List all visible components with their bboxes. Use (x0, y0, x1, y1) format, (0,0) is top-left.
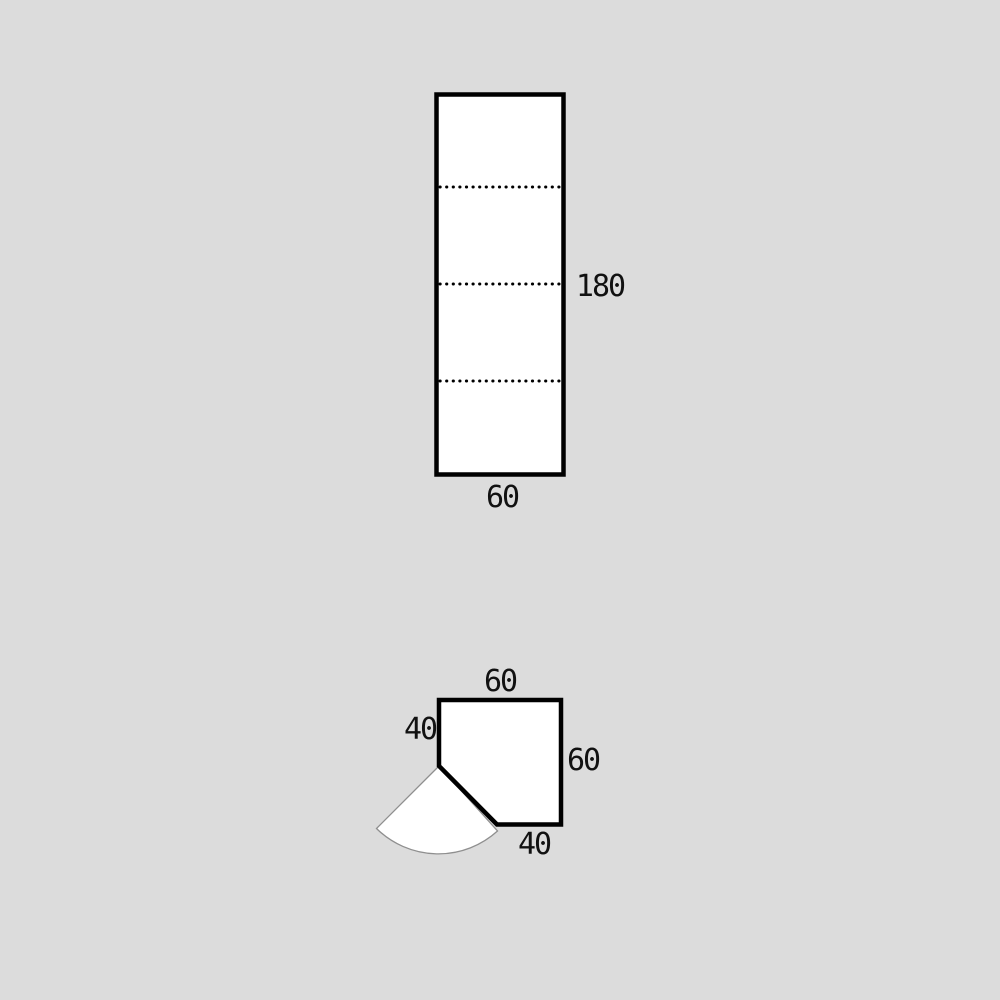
diagram-canvas: 180 60 60 40 60 40 (0, 0, 1000, 1000)
tall-cabinet-height-label: 180 (576, 272, 624, 302)
corner-cabinet-top-label: 60 (484, 667, 516, 697)
tall-cabinet-front-view (437, 95, 564, 475)
corner-cabinet-right-label: 60 (567, 746, 599, 776)
tall-cabinet-width-label: 60 (486, 483, 518, 513)
corner-cabinet-left-label: 40 (404, 715, 436, 745)
corner-cabinet-bottom-label: 40 (518, 830, 550, 860)
